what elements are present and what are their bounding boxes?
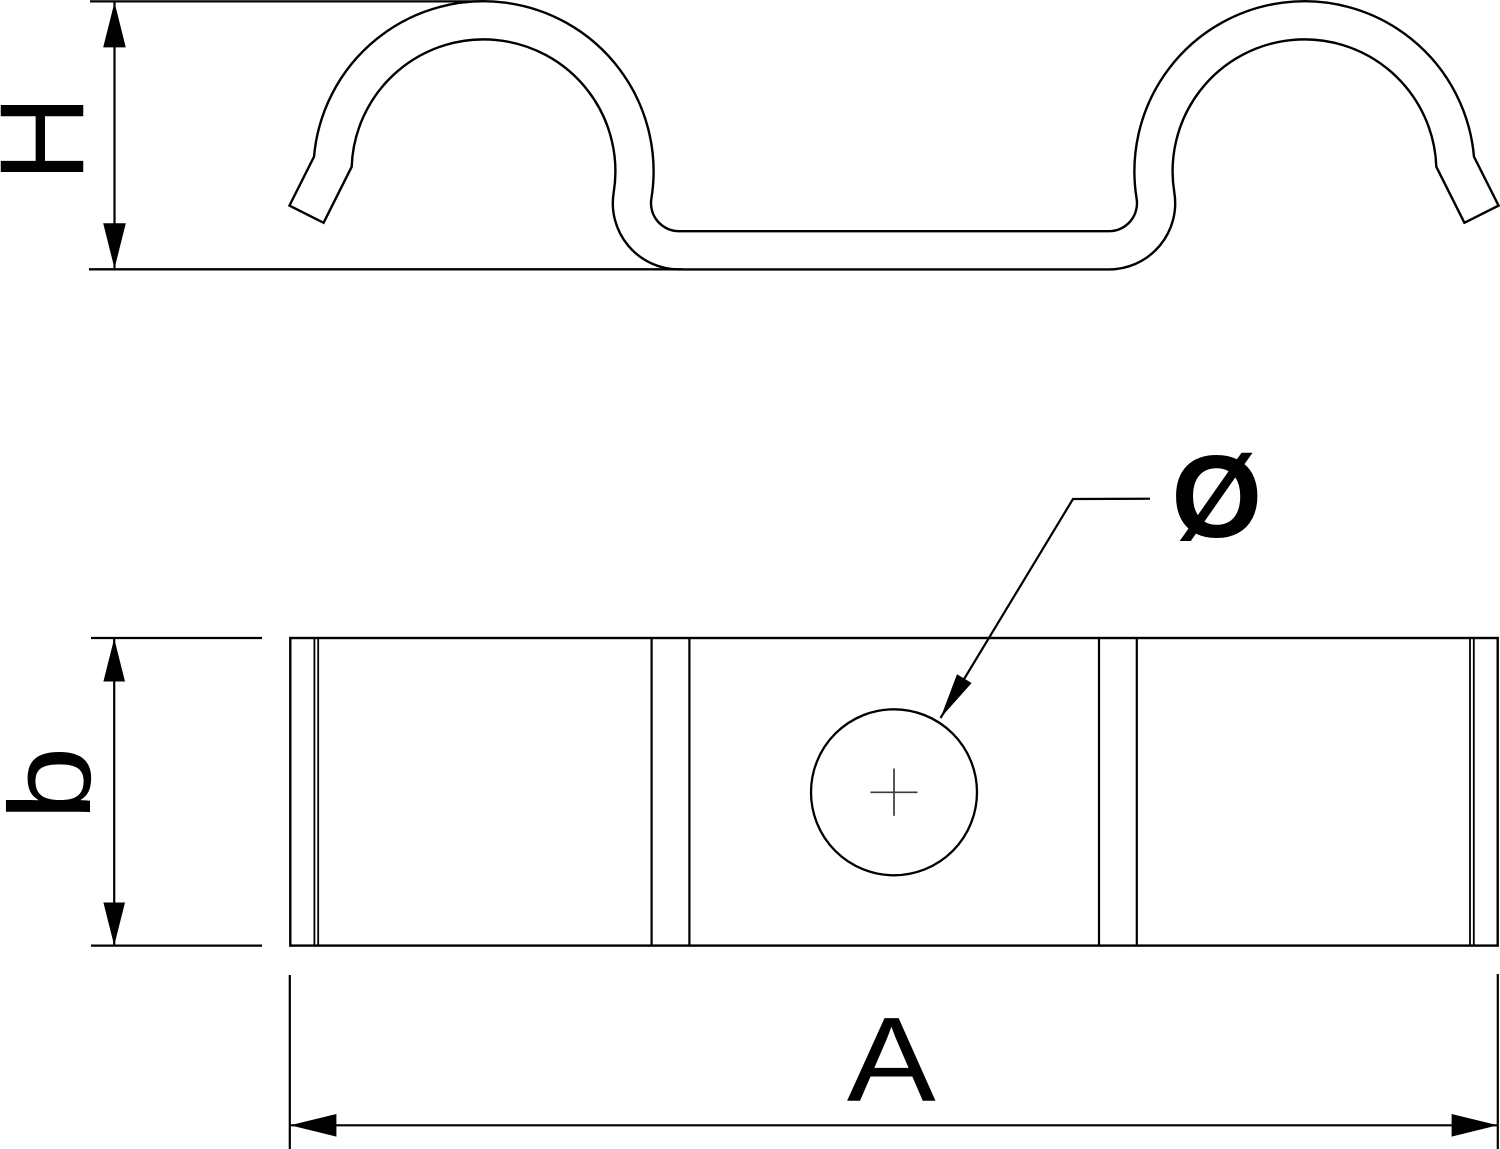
- svg-text:Ø: Ø: [1171, 431, 1262, 562]
- svg-text:b: b: [0, 746, 115, 820]
- svg-text:A: A: [847, 992, 936, 1126]
- svg-text:H: H: [0, 95, 109, 182]
